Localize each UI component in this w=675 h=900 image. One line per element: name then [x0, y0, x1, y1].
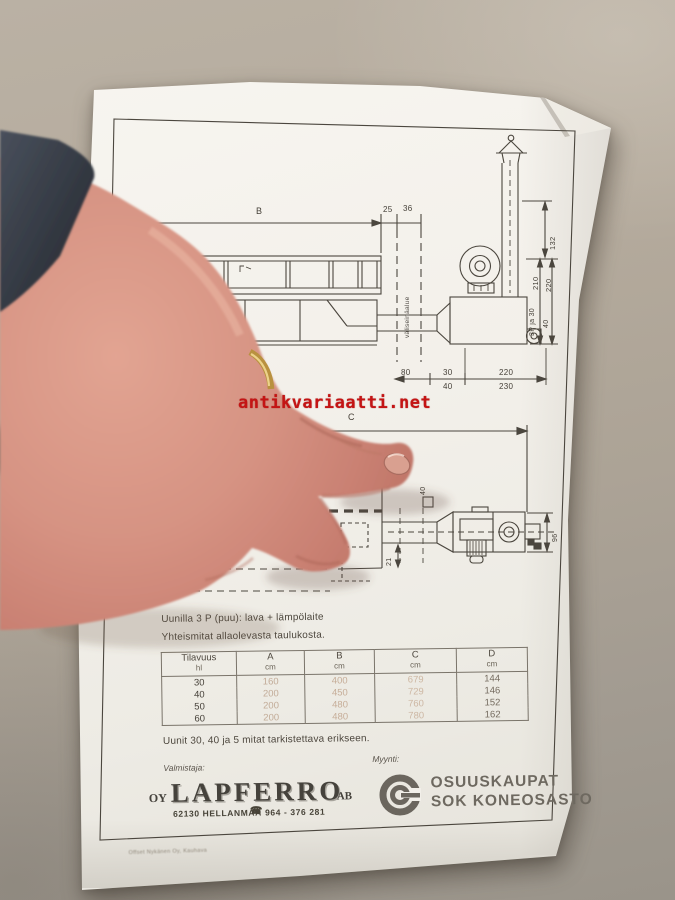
seller-name-line2: SOK KONEOSASTO	[431, 790, 593, 811]
cell-d: 144	[457, 671, 528, 684]
cell-volume: 50	[162, 700, 237, 713]
cell-b: 480	[305, 698, 375, 711]
note-line-2: Yhteismitat allaolevasta taulukosta.	[161, 630, 325, 643]
brand-phone: 964 - 376 281	[265, 807, 325, 818]
cell-a: 200	[237, 687, 305, 700]
cell-a: 160	[237, 674, 305, 687]
cell-d: 162	[457, 708, 528, 721]
brand-name-lapferro: LAPFERRO	[171, 775, 344, 808]
cell-c: 780	[375, 709, 457, 723]
table-header-d: Dcm	[456, 647, 527, 672]
cell-b: 480	[305, 710, 375, 723]
cell-c: 679	[375, 672, 457, 686]
note-line-3: Uunit 30, 40 ja 5 mitat tarkistettava er…	[163, 733, 370, 747]
brand-address: 62130 HELLANMAA	[173, 808, 262, 819]
note-line-1: Uunilla 3 P (puu): lava + lämpölaite	[161, 612, 324, 625]
brand-suffix: AB	[337, 790, 352, 802]
table-header-a: Acm	[236, 650, 304, 675]
cell-a: 200	[237, 711, 305, 724]
table-header-b: Bcm	[304, 649, 374, 674]
seller-name-line1: OSUUSKAUPAT	[430, 771, 559, 792]
watermark-text: antikvariaatti.net	[238, 393, 431, 413]
lower-print-block: Uunilla 3 P (puu): lava + lämpölaite Yht…	[0, 0, 675, 900]
cell-volume: 40	[162, 688, 237, 701]
table-header-tilavuus: Tilavuushl	[161, 651, 236, 676]
brand-prefix: OY	[149, 791, 167, 806]
cell-b: 400	[305, 673, 375, 686]
cell-volume: 30	[162, 675, 237, 689]
dimension-table: Tilavuushl Acm Bcm Ccm Dcm 30 160 400 67…	[161, 647, 529, 726]
printer-credit: Offset Nykänen Oy, Kauhava	[128, 848, 207, 856]
cell-b: 450	[305, 686, 375, 699]
table-header-c: Ccm	[374, 648, 456, 673]
photo-of-leaflet: B 25 36 132 210 220 3P ja 30 40 välisein…	[0, 0, 675, 900]
cell-volume: 60	[162, 712, 237, 726]
manufacturer-label: Valmistaja:	[163, 762, 204, 773]
phone-icon: ☎	[250, 806, 263, 817]
seller-label: Myynti:	[372, 754, 399, 764]
cell-d: 152	[457, 696, 528, 709]
cell-d: 146	[457, 684, 528, 697]
cell-a: 200	[237, 699, 305, 712]
